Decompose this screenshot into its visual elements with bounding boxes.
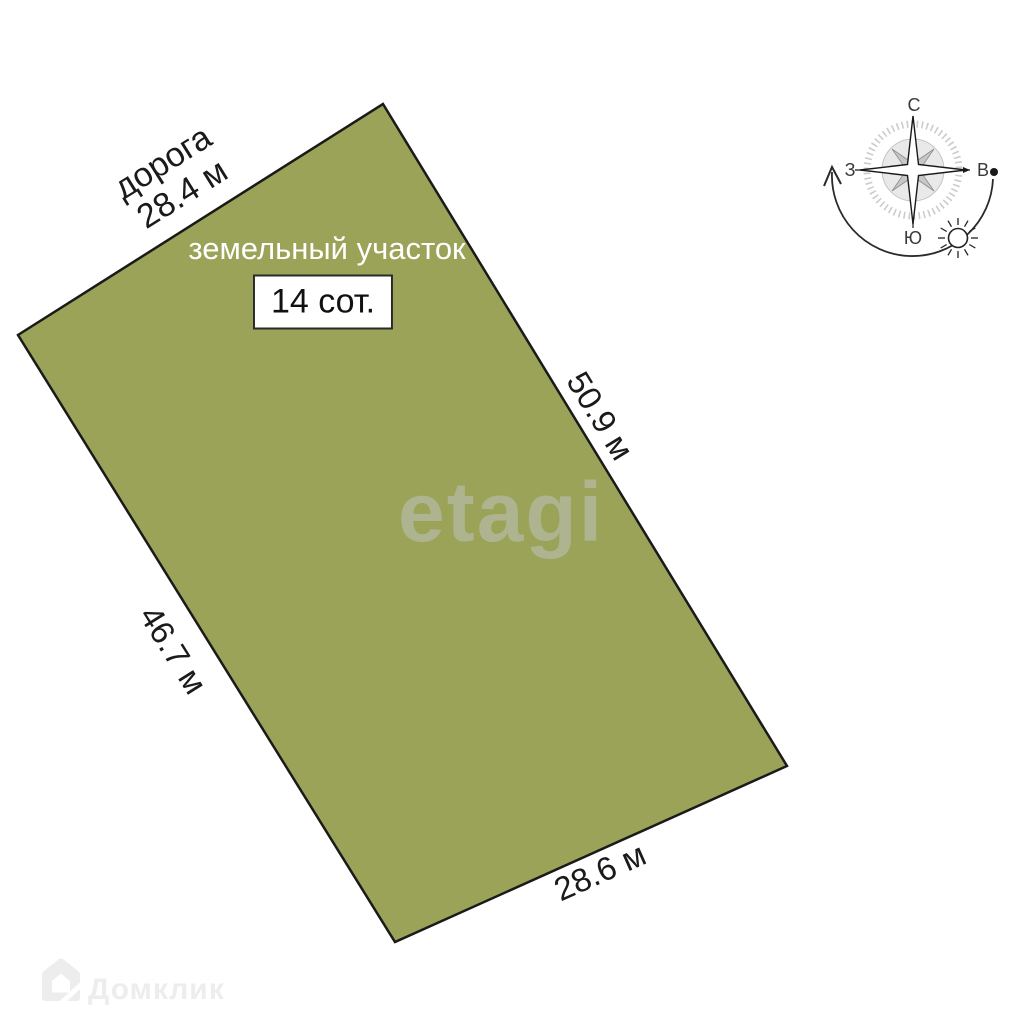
compass-label-south: Ю [904,228,922,248]
compass-star-cardinal [860,116,966,224]
plot-area-badge: 14 сот. [253,275,393,330]
compass-rose: С Ю З В [824,95,998,258]
arc-start-dot [990,168,998,176]
compass-label-west: З [845,160,856,180]
domclick-watermark: Домклик [42,959,225,1007]
domclick-logo-text: Домклик [88,973,225,1006]
domclick-house-icon [42,959,80,1002]
compass-label-east: В [977,160,989,180]
plot-name-label: земельный участок [188,231,465,267]
compass-label-north: С [908,95,921,115]
sun-icon [938,218,978,258]
etagi-watermark: etagi [398,465,604,559]
land-plot-diagram: etagi С Ю З В [0,0,1024,1024]
